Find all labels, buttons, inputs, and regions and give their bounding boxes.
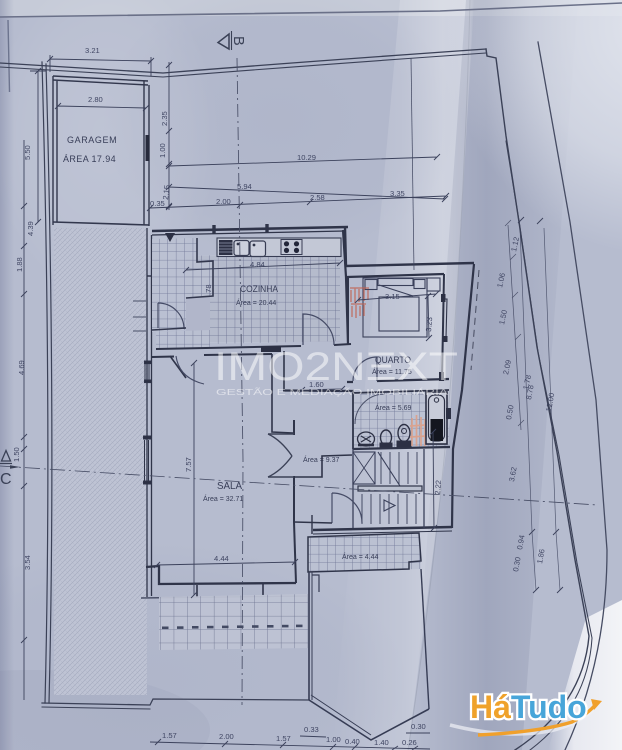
svg-text:SALA: SALA (217, 481, 242, 492)
svg-text:0.40: 0.40 (345, 737, 360, 746)
svg-text:Área = 5.69: Área = 5.69 (375, 403, 411, 412)
svg-text:Área = 32.71: Área = 32.71 (203, 494, 243, 503)
svg-text:1.50: 1.50 (12, 447, 21, 462)
svg-text:0.35: 0.35 (150, 199, 165, 208)
svg-text:IMO2NΞXT: IMO2NΞXT (214, 345, 458, 389)
svg-text:3.21: 3.21 (85, 46, 100, 55)
svg-text:4.69: 4.69 (17, 360, 26, 375)
svg-text:2.80: 2.80 (88, 95, 103, 104)
svg-text:2.58: 2.58 (310, 193, 325, 202)
svg-text:C: C (0, 471, 12, 488)
svg-text:COZINHA: COZINHA (240, 284, 279, 294)
svg-text:2.00: 2.00 (216, 197, 231, 206)
svg-text:HáTudo: HáTudo (470, 689, 587, 725)
svg-text:GARAGEM: GARAGEM (67, 135, 117, 145)
svg-text:1.88: 1.88 (15, 257, 24, 272)
svg-text:2.22: 2.22 (433, 480, 443, 495)
svg-text:0.30: 0.30 (411, 722, 426, 731)
svg-text:4.39: 4.39 (26, 221, 35, 236)
svg-text:1.00: 1.00 (158, 143, 167, 158)
svg-text:B: B (230, 36, 246, 46)
svg-text:GESTÃO E MEDIAÇÃO IMOBILIÁRIA: GESTÃO E MEDIAÇÃO IMOBILIÁRIA (216, 387, 448, 397)
svg-text:5.50: 5.50 (23, 145, 32, 160)
svg-text:3.35: 3.35 (390, 189, 405, 198)
svg-text:1.57: 1.57 (276, 734, 291, 743)
svg-text:2.00: 2.00 (219, 732, 234, 741)
svg-text:.78: .78 (204, 284, 213, 295)
svg-text:1.57: 1.57 (162, 731, 177, 740)
svg-text:2.35: 2.35 (160, 111, 169, 126)
svg-text:0.33: 0.33 (304, 725, 319, 734)
svg-text:3.54: 3.54 (23, 555, 32, 570)
svg-text:ÁREA 17.94: ÁREA 17.94 (63, 154, 116, 164)
svg-text:4.44: 4.44 (214, 554, 229, 563)
svg-text:7.57: 7.57 (184, 457, 193, 472)
svg-text:1.40: 1.40 (374, 738, 389, 747)
svg-text:0.26: 0.26 (402, 738, 417, 747)
svg-text:Área = 20.44: Área = 20.44 (236, 298, 276, 307)
svg-text:3.23: 3.23 (424, 317, 434, 333)
svg-text:4.84: 4.84 (250, 260, 265, 269)
svg-text:10.29: 10.29 (297, 153, 316, 162)
svg-text:2.15: 2.15 (161, 185, 171, 201)
svg-text:3.15: 3.15 (385, 292, 400, 301)
svg-text:Área = 4.44: Área = 4.44 (342, 552, 378, 561)
svg-text:1.00: 1.00 (326, 735, 341, 744)
